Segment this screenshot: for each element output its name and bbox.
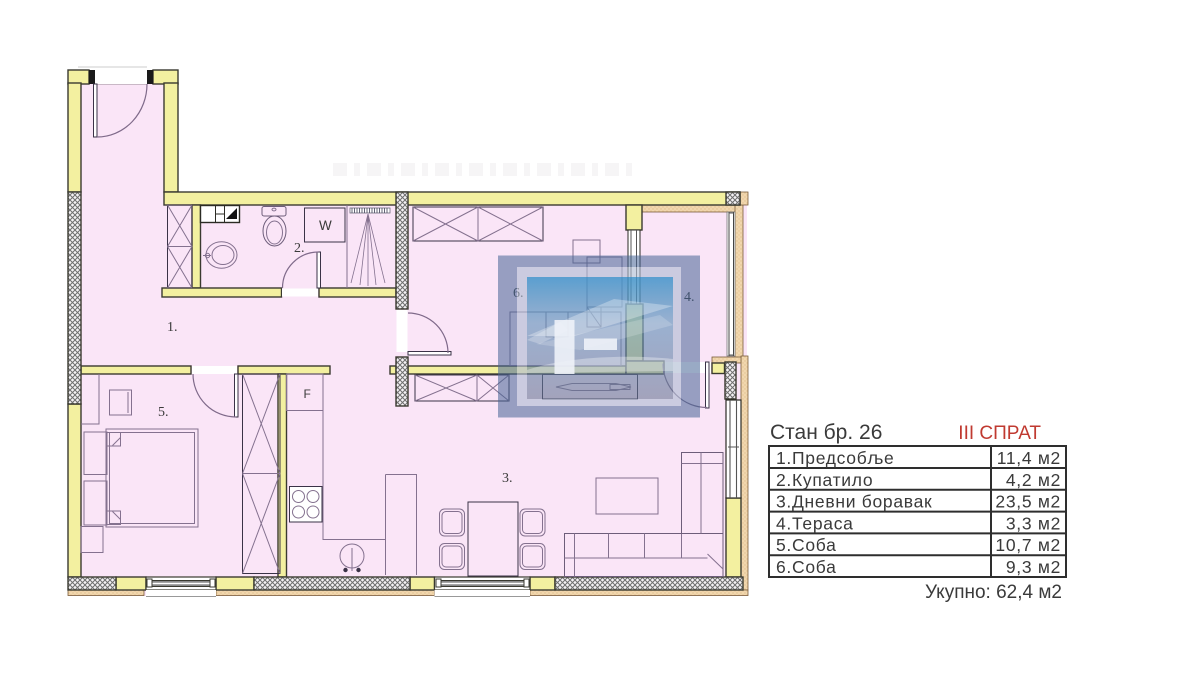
svg-text:6.Соба: 6.Соба (776, 557, 837, 577)
svg-text:10,7 м2: 10,7 м2 (995, 535, 1061, 555)
svg-text:5.: 5. (158, 405, 169, 420)
svg-text:23,5 м2: 23,5 м2 (995, 492, 1061, 512)
svg-text:1.Предсобље: 1.Предсобље (776, 448, 894, 468)
svg-text:III СПРАТ: III СПРАТ (958, 423, 1041, 444)
svg-text:4,2 м2: 4,2 м2 (1006, 470, 1061, 490)
svg-text:1.: 1. (167, 320, 178, 335)
svg-text:5.Соба: 5.Соба (776, 535, 837, 555)
svg-text:3.: 3. (502, 471, 513, 486)
svg-text:2.: 2. (294, 241, 305, 256)
svg-text:3.Дневни боравак: 3.Дневни боравак (776, 492, 932, 512)
svg-text:W: W (319, 218, 332, 233)
svg-text:F: F (304, 387, 311, 401)
svg-text:Укупно: 62,4 м2: Укупно: 62,4 м2 (925, 582, 1062, 603)
svg-text:4.Тераса: 4.Тераса (776, 513, 854, 533)
svg-text:Стан бр. 26: Стан бр. 26 (770, 421, 882, 444)
svg-text:11,4 м2: 11,4 м2 (997, 448, 1061, 468)
svg-text:9,3 м2: 9,3 м2 (1006, 557, 1061, 577)
svg-text:2.Купатило: 2.Купатило (776, 470, 873, 490)
svg-text:3,3 м2: 3,3 м2 (1006, 513, 1061, 533)
